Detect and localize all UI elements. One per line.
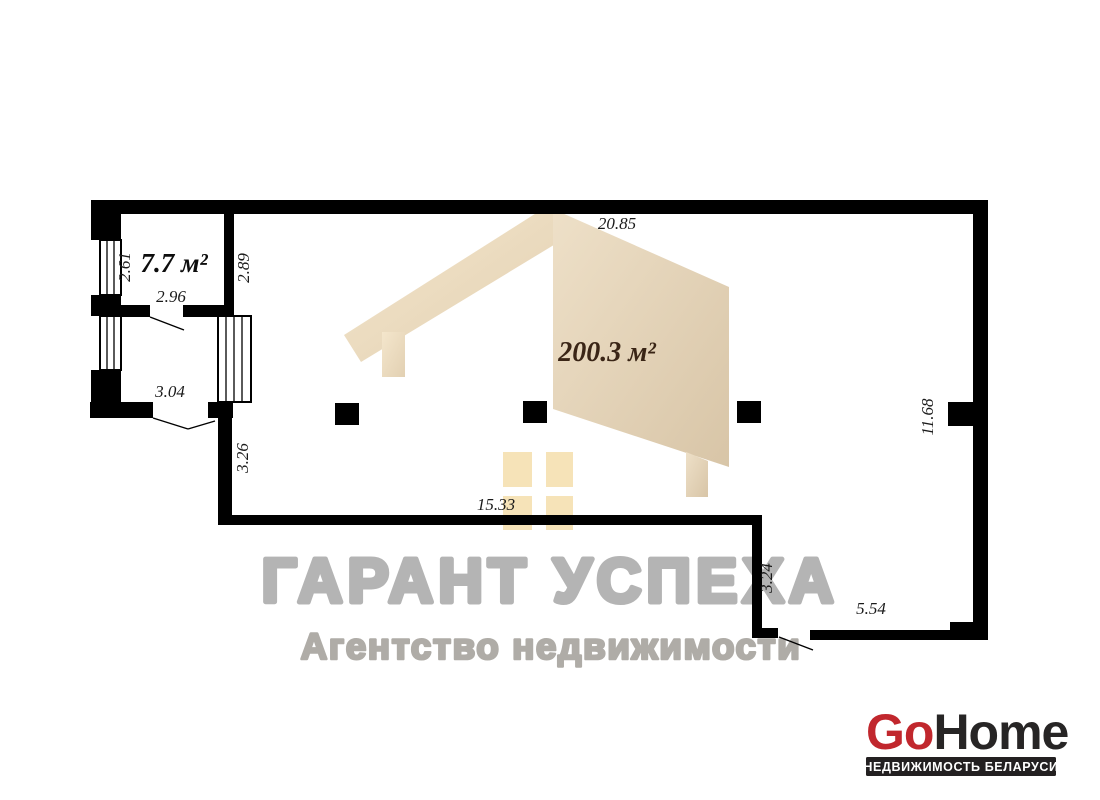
door-swing-small-room [150,317,184,330]
gohome-logo: GoHome НЕДВИЖИМОСТЬ БЕЛАРУСИ [863,704,1068,776]
gohome-wordmark: GoHome [866,704,1069,760]
house-window-pane [546,452,573,487]
gohome-logo-home: Home [933,704,1068,760]
window-frame [100,316,121,370]
wall-room-divider-left [121,305,150,317]
dimension-top-width: 20.85 [598,214,636,233]
dimension-hall-door: 3.04 [154,382,185,401]
dimension-bottom-width: 15.33 [477,495,515,514]
dimension-small-room-right: 2.89 [234,253,253,283]
house-wall-stub-icon [382,332,405,377]
house-window-pane [503,452,532,487]
wall-step-stub [752,628,778,638]
room-area-small: 7.7 м² [140,248,208,278]
stairs-icon [218,316,251,402]
wall-lower-left [218,402,232,525]
gohome-logo-go: Go [866,704,933,760]
agency-house-watermark-icon [344,205,729,530]
wall-bottom-main [218,515,762,525]
dimension-small-room-left: 2.61 [115,252,134,282]
door-swing-hall-right [188,421,215,429]
wall-room-right [224,213,234,310]
wall-hall-bottom [90,402,153,418]
dimension-step-vertical: 3.24 [757,563,776,594]
column [737,401,761,423]
column-right-wall [948,402,973,426]
watermark-agency-name: ГАРАНТ УСПЕХА [262,547,839,616]
wall-left-pier-top [91,200,121,240]
watermark-agency-subtitle: Агентство недвижимости [301,626,802,667]
window-lower-icon [100,316,121,370]
wall-top [91,200,988,214]
column [335,403,359,425]
dimension-small-room-door: 2.96 [156,287,186,306]
column [523,401,547,423]
gohome-tagline: НЕДВИЖИМОСТЬ БЕЛАРУСИ [863,760,1058,774]
dimension-lower-left-wall: 3.26 [233,443,252,474]
wall-left-pier-middle [91,295,121,316]
room-area-main: 200.3 м² [557,337,656,368]
dimension-right-height: 11.68 [918,398,937,435]
floor-plan-drawing: ГАРАНТ УСПЕХА Агентство недвижимости [0,0,1100,800]
dimension-step-bottom: 5.54 [856,599,886,618]
door-swing-hall-left [153,418,188,429]
wall-right [973,200,988,640]
floor-plan-page: ГАРАНТ УСПЕХА Агентство недвижимости [0,0,1100,800]
house-roof-left-icon [344,205,567,362]
